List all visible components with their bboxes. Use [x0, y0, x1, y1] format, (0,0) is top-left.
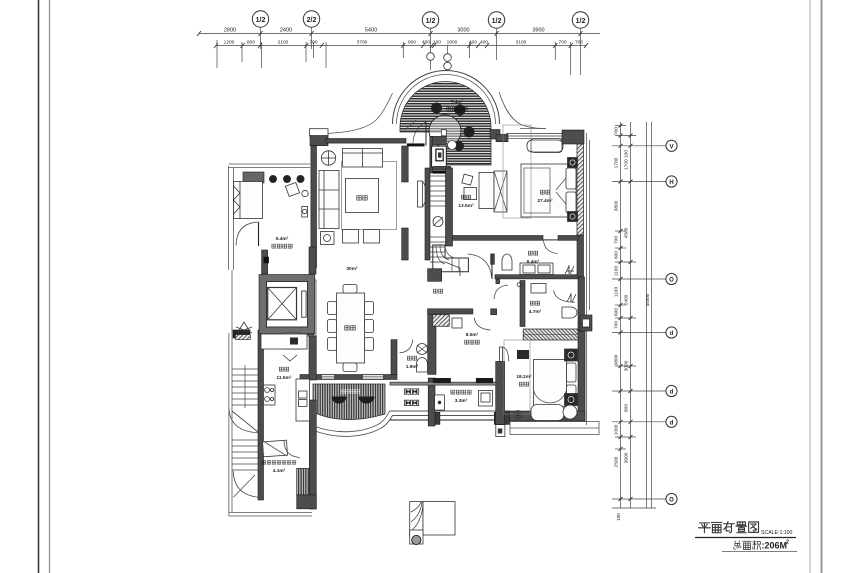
- svg-text:600: 600: [614, 251, 620, 259]
- svg-text:1100: 1100: [614, 266, 620, 277]
- svg-text:1600: 1600: [447, 40, 458, 46]
- svg-text:1/2: 1/2: [426, 18, 436, 25]
- svg-text:1/2: 1/2: [256, 17, 266, 24]
- svg-text:1200: 1200: [224, 40, 235, 46]
- svg-text:2400: 2400: [624, 294, 630, 305]
- svg-text:O: O: [669, 278, 674, 284]
- svg-text:2400: 2400: [280, 28, 292, 34]
- svg-text:1000: 1000: [614, 424, 620, 435]
- svg-text:3100: 3100: [516, 40, 527, 46]
- svg-text:400: 400: [480, 40, 488, 46]
- svg-text:1/2: 1/2: [492, 18, 502, 25]
- svg-text:700: 700: [558, 40, 566, 46]
- svg-text:700: 700: [614, 127, 620, 135]
- svg-text:3900: 3900: [624, 452, 630, 463]
- svg-text:4.1m²: 4.1m²: [273, 468, 286, 474]
- svg-text:3800: 3800: [614, 354, 620, 365]
- svg-text:2: 2: [786, 540, 789, 546]
- svg-text:5.4m²: 5.4m²: [276, 236, 289, 242]
- svg-text:V: V: [669, 144, 673, 150]
- svg-text:700: 700: [575, 40, 583, 46]
- svg-text:700: 700: [614, 236, 620, 244]
- svg-text::206M: :206M: [762, 541, 788, 551]
- svg-text:13.5m²: 13.5m²: [458, 203, 474, 209]
- svg-text:45500: 45500: [645, 293, 650, 306]
- svg-text:1100: 1100: [614, 287, 620, 298]
- svg-text:18.2m²: 18.2m²: [516, 374, 532, 380]
- svg-text:400: 400: [422, 40, 430, 46]
- svg-text:2800: 2800: [224, 28, 236, 34]
- svg-text:1700: 1700: [614, 157, 620, 168]
- svg-text:1.9m²: 1.9m²: [406, 364, 419, 370]
- svg-text:700: 700: [309, 40, 317, 46]
- svg-text:900: 900: [408, 40, 416, 46]
- svg-text:800: 800: [247, 40, 255, 46]
- svg-text:8.5m²: 8.5m²: [466, 332, 479, 338]
- svg-text:2500: 2500: [614, 456, 620, 467]
- svg-text:H: H: [669, 180, 673, 186]
- svg-text:4.7m²: 4.7m²: [529, 309, 542, 315]
- svg-text:1/2: 1/2: [576, 18, 586, 25]
- svg-text:3.3m²: 3.3m²: [455, 398, 468, 404]
- svg-text:700: 700: [614, 321, 620, 329]
- svg-text:3000: 3000: [624, 360, 630, 371]
- svg-text:O: O: [669, 498, 674, 504]
- svg-text:2100: 2100: [278, 40, 289, 46]
- svg-text:3000: 3000: [457, 28, 469, 34]
- svg-text:5400: 5400: [365, 28, 377, 34]
- svg-text:800: 800: [624, 404, 630, 412]
- svg-text:11.5m²: 11.5m²: [277, 375, 292, 381]
- svg-text:d: d: [670, 390, 674, 396]
- svg-text:7.4m²: 7.4m²: [451, 99, 463, 104]
- svg-text:100: 100: [616, 513, 621, 521]
- svg-text:SCALE:1:100: SCALE:1:100: [761, 530, 793, 536]
- svg-text:d: d: [670, 420, 674, 426]
- svg-text:27.4m²: 27.4m²: [537, 198, 553, 204]
- svg-text:2/2: 2/2: [307, 17, 317, 24]
- svg-text:4500: 4500: [624, 227, 630, 238]
- svg-text:100: 100: [433, 40, 441, 46]
- svg-text:400: 400: [469, 40, 477, 46]
- svg-text:3800: 3800: [614, 200, 620, 211]
- svg-text:30m²: 30m²: [346, 266, 358, 272]
- svg-text:3700: 3700: [357, 40, 368, 46]
- svg-text:1700 100: 1700 100: [624, 150, 630, 170]
- svg-text:600: 600: [614, 308, 620, 316]
- svg-text:6.4m²: 6.4m²: [527, 259, 540, 265]
- svg-text:3900: 3900: [532, 28, 544, 34]
- svg-text:d: d: [670, 331, 674, 337]
